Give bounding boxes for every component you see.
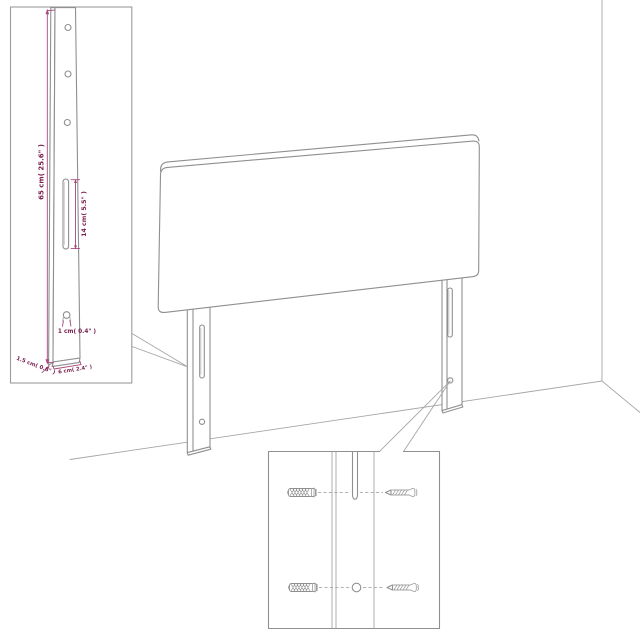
left-leg (187, 304, 211, 455)
inset-hole-1 (65, 25, 71, 31)
slot-length-label: 14 cm( 5.5" ) (81, 191, 88, 237)
assembly-diagram: 65 cm( 25.6" ) 14 cm( 5.5" ) 1 cm( 0.4" … (0, 0, 640, 640)
right-leg (442, 275, 463, 414)
left-leg-slot (200, 325, 205, 378)
hardware-detail-inset (269, 452, 440, 629)
inset-hole-2 (65, 71, 71, 77)
leg-detail-inset: 65 cm( 25.6" ) 14 cm( 5.5" ) 1 cm( 0.4" … (11, 7, 132, 383)
keyhole-diameter-label: 1 cm( 0.4" ) (58, 329, 97, 335)
headboard-panel (158, 135, 479, 313)
floor-line-right (602, 381, 640, 413)
inset-hole-3 (64, 120, 70, 126)
floor-line-left (70, 381, 602, 460)
wall-plug-icon (288, 583, 317, 592)
right-leg-slot (448, 288, 453, 337)
callout-lines-left (132, 334, 188, 367)
mounting-hole (352, 583, 361, 592)
left-leg-hole (199, 419, 204, 424)
inset-slot (63, 179, 69, 249)
callout-lines-right (380, 381, 451, 452)
wall-plug-icon (287, 488, 316, 497)
leg-height-label: 65 cm( 25.6" ) (38, 144, 46, 200)
